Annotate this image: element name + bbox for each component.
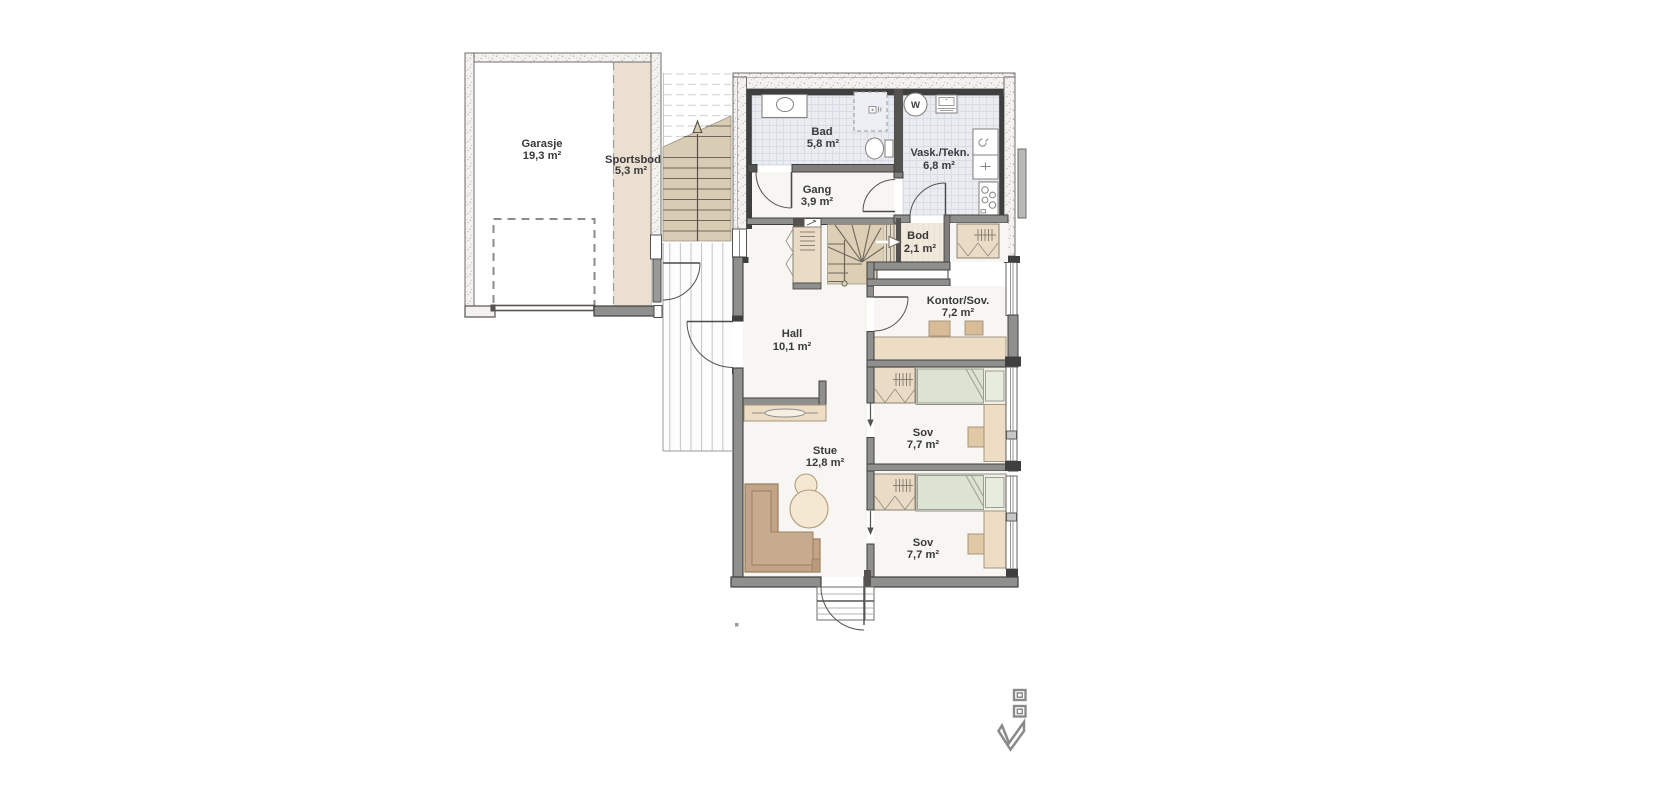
svg-text:2,1 m²: 2,1 m² [904, 243, 937, 255]
svg-text:Bod: Bod [907, 230, 929, 242]
svg-text:Sov: Sov [913, 537, 934, 549]
svg-text:5,8 m²: 5,8 m² [807, 138, 840, 150]
svg-text:10,1 m²: 10,1 m² [773, 341, 812, 353]
svg-text:7,2 m²: 7,2 m² [942, 307, 975, 319]
svg-text:Kontor/Sov.: Kontor/Sov. [927, 295, 990, 307]
svg-text:Garasje: Garasje [521, 138, 562, 150]
svg-text:W: W [911, 100, 920, 111]
svg-text:5,3 m²: 5,3 m² [615, 165, 648, 177]
svg-text:12,8 m²: 12,8 m² [806, 457, 845, 469]
svg-text:6,8 m²: 6,8 m² [923, 160, 955, 172]
svg-text:Gang: Gang [803, 184, 832, 196]
svg-text:7,7 m²: 7,7 m² [907, 439, 940, 451]
svg-text:Vask./Tekn.: Vask./Tekn. [910, 147, 969, 159]
svg-text:3,9 m²: 3,9 m² [801, 196, 834, 208]
svg-text:Sov: Sov [913, 427, 934, 439]
svg-text:7,7 m²: 7,7 m² [907, 549, 940, 561]
svg-text:19,3 m²: 19,3 m² [523, 150, 562, 162]
svg-text:Hall: Hall [782, 328, 803, 340]
svg-text:Stue: Stue [813, 445, 837, 457]
svg-text:Bad: Bad [811, 126, 832, 138]
